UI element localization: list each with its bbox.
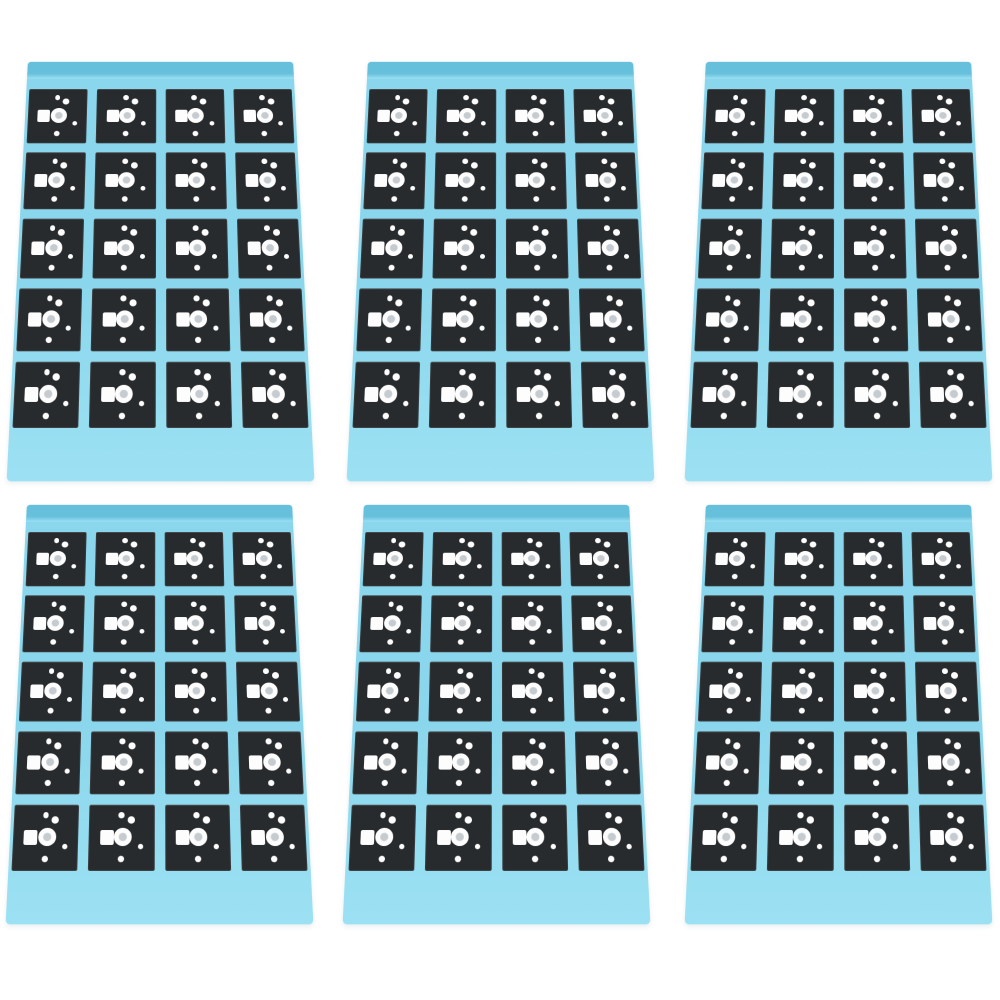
- ring-circle-cutout: [796, 172, 813, 187]
- small-dot-top-left-cutout: [261, 159, 267, 164]
- dot-bottom-cutout: [120, 708, 126, 714]
- ring-circle-cutout: [944, 828, 962, 846]
- small-dot-top-left-cutout: [54, 95, 59, 100]
- square-cutout: [245, 174, 258, 186]
- dot-bottom-cutout: [796, 412, 803, 419]
- adhesive-pad: [26, 89, 87, 143]
- ring-circle-cutout: [262, 753, 280, 770]
- adhesive-pad: [843, 219, 906, 279]
- dot-top-right-cutout: [392, 373, 399, 380]
- dot-bottom-cutout: [51, 196, 57, 202]
- small-dot-top-left-cutout: [379, 812, 385, 818]
- ring-circle-cutout: [594, 615, 611, 630]
- dot-bottom-cutout: [870, 196, 876, 202]
- small-dot-right-cutout: [618, 121, 623, 125]
- adhesive-pad: [916, 731, 982, 794]
- dot-top-right-cutout: [274, 742, 281, 749]
- square-cutout: [583, 685, 596, 698]
- ring-circle-cutout: [187, 108, 203, 123]
- dot-top-right-cutout: [730, 373, 737, 380]
- adhesive-pad: [914, 662, 978, 722]
- small-dot-right-cutout: [476, 629, 481, 634]
- square-cutout: [446, 110, 459, 121]
- ring-circle-cutout: [720, 310, 738, 327]
- dot-top-right-cutout: [128, 742, 135, 749]
- dot-bottom-cutout: [800, 131, 806, 136]
- ring-circle-cutout: [190, 310, 207, 327]
- dot-top-right-cutout: [540, 162, 547, 168]
- adhesive-pad: [843, 362, 909, 428]
- dot-bottom-cutout: [121, 639, 127, 645]
- small-dot-right-cutout: [402, 401, 407, 406]
- small-dot-top-left-cutout: [45, 738, 51, 744]
- small-dot-top-left-cutout: [122, 159, 127, 164]
- ring-circle-cutout: [728, 551, 745, 566]
- small-dot-right-cutout: [401, 769, 406, 774]
- dot-bottom-cutout: [601, 131, 607, 136]
- small-dot-top-left-cutout: [601, 159, 607, 164]
- small-dot-right-cutout: [617, 629, 622, 634]
- adhesive-pad: [89, 362, 155, 428]
- small-dot-right-cutout: [965, 326, 970, 331]
- small-dot-right-cutout: [749, 121, 754, 125]
- adhesive-pad: [430, 288, 494, 351]
- adhesive-pad: [165, 89, 225, 143]
- small-dot-top-left-cutout: [527, 538, 532, 543]
- small-dot-top-left-cutout: [193, 812, 199, 818]
- dot-top-right-cutout: [808, 162, 815, 168]
- square-cutout: [103, 617, 116, 629]
- small-dot-right-cutout: [550, 186, 555, 191]
- adhesive-pad: [573, 89, 634, 143]
- small-dot-top-left-cutout: [529, 738, 535, 744]
- square-cutout: [781, 242, 794, 255]
- small-dot-top-left-cutout: [604, 225, 610, 230]
- small-dot-right-cutout: [743, 326, 748, 331]
- small-dot-right-cutout: [891, 326, 896, 331]
- dot-bottom-cutout: [261, 131, 267, 136]
- square-cutout: [104, 174, 117, 186]
- adhesive-pad: [22, 595, 85, 652]
- adhesive-pad: [770, 662, 833, 722]
- ring-circle-cutout: [455, 551, 471, 566]
- square-cutout: [852, 553, 864, 564]
- dot-bottom-cutout: [530, 780, 536, 786]
- adhesive-sheet-6: [696, 484, 981, 914]
- ring-circle-cutout: [868, 753, 885, 770]
- ring-circle-cutout: [186, 551, 202, 566]
- dot-top-right-cutout: [203, 373, 210, 380]
- ring-circle-cutout: [868, 828, 886, 846]
- dot-top-right-cutout: [609, 672, 616, 678]
- adhesive-pad: [18, 662, 82, 722]
- small-dot-top-left-cutout: [730, 159, 736, 164]
- dot-bottom-cutout: [191, 639, 197, 645]
- small-dot-right-cutout: [284, 254, 289, 259]
- square-cutout: [709, 242, 723, 255]
- dot-bottom-cutout: [44, 780, 51, 786]
- square-cutout: [852, 110, 864, 121]
- adhesive-pad: [916, 288, 982, 351]
- small-dot-right-cutout: [138, 769, 143, 774]
- ring-circle-cutout: [50, 108, 67, 123]
- dot-bottom-cutout: [528, 574, 534, 579]
- dot-top-right-cutout: [542, 299, 549, 306]
- dot-bottom-cutout: [120, 337, 126, 343]
- adhesive-pad: [432, 219, 495, 279]
- adhesive-pad: [232, 532, 293, 586]
- dot-top-right-cutout: [396, 605, 403, 611]
- small-dot-top-left-cutout: [944, 738, 950, 744]
- dot-top-right-cutout: [618, 373, 625, 380]
- dot-top-right-cutout: [398, 229, 405, 235]
- dot-bottom-cutout: [265, 708, 271, 714]
- dot-top-right-cutout: [129, 605, 136, 611]
- dot-bottom-cutout: [939, 574, 945, 579]
- square-cutout: [921, 553, 934, 564]
- ring-circle-cutout: [188, 172, 205, 187]
- square-cutout: [444, 174, 457, 186]
- ring-circle-cutout: [936, 172, 953, 187]
- dot-bottom-cutout: [385, 337, 392, 343]
- small-dot-top-left-cutout: [265, 738, 271, 744]
- pad-grid: [687, 79, 989, 428]
- adhesive-pad: [574, 731, 640, 794]
- small-dot-right-cutout: [549, 121, 554, 125]
- small-dot-top-left-cutout: [797, 369, 803, 375]
- ring-circle-cutout: [189, 240, 206, 256]
- small-dot-right-cutout: [888, 629, 893, 634]
- dot-bottom-cutout: [462, 196, 468, 202]
- adhesive-pad: [94, 152, 155, 209]
- ring-circle-cutout: [716, 828, 734, 846]
- ring-circle-cutout: [602, 828, 620, 846]
- sheet-top-edge-strip: [26, 62, 293, 79]
- dot-top-right-cutout: [610, 162, 617, 168]
- ring-circle-cutout: [117, 615, 134, 630]
- ring-circle-cutout: [46, 615, 63, 630]
- small-dot-right-cutout: [959, 186, 964, 191]
- ring-circle-cutout: [868, 310, 885, 327]
- sheet-top-edge-strip: [362, 505, 629, 522]
- dot-bottom-cutout: [382, 412, 389, 419]
- dot-bottom-cutout: [270, 855, 277, 862]
- square-cutout: [373, 553, 386, 564]
- small-dot-top-left-cutout: [797, 812, 803, 818]
- dot-bottom-cutout: [599, 639, 605, 645]
- small-dot-right-cutout: [818, 186, 823, 191]
- small-dot-top-left-cutout: [727, 668, 733, 673]
- ring-circle-cutout: [722, 683, 739, 699]
- small-dot-right-cutout: [139, 564, 144, 568]
- ring-circle-cutout: [528, 172, 545, 187]
- ring-circle-cutout: [38, 385, 56, 403]
- square-cutout: [511, 617, 524, 629]
- ring-circle-cutout: [606, 385, 624, 403]
- dot-top-right-cutout: [607, 98, 614, 104]
- dot-top-right-cutout: [62, 98, 69, 104]
- adhesive-pad: [164, 532, 224, 586]
- square-cutout: [702, 388, 716, 402]
- small-dot-right-cutout: [621, 186, 626, 191]
- ring-circle-cutout: [378, 753, 396, 770]
- dot-top-right-cutout: [467, 541, 474, 547]
- ring-circle-cutout: [939, 683, 956, 699]
- adhesive-pad: [768, 288, 832, 351]
- adhesive-pad: [697, 219, 761, 279]
- adhesive-pad: [505, 288, 569, 351]
- square-cutout: [101, 756, 115, 769]
- small-dot-top-left-cutout: [869, 538, 874, 543]
- ring-circle-cutout: [867, 683, 884, 699]
- small-dot-top-left-cutout: [459, 538, 464, 543]
- small-dot-right-cutout: [137, 844, 142, 849]
- square-cutout: [588, 831, 602, 845]
- dot-top-right-cutout: [398, 541, 405, 547]
- small-dot-right-cutout: [959, 629, 964, 634]
- adhesive-pad: [11, 805, 79, 871]
- dot-top-right-cutout: [52, 373, 59, 380]
- square-cutout: [780, 313, 794, 326]
- small-dot-top-left-cutout: [939, 159, 945, 164]
- dot-bottom-cutout: [461, 265, 467, 271]
- dot-bottom-cutout: [122, 196, 128, 202]
- dot-top-right-cutout: [613, 229, 620, 235]
- ring-circle-cutout: [934, 551, 951, 566]
- square-cutout: [585, 756, 599, 769]
- dot-top-right-cutout: [539, 98, 546, 104]
- small-dot-right-cutout: [747, 629, 752, 634]
- pad-grid: [9, 79, 311, 428]
- dot-bottom-cutout: [384, 708, 390, 714]
- small-dot-right-cutout: [405, 629, 410, 634]
- dot-top-right-cutout: [877, 541, 884, 547]
- small-dot-top-left-cutout: [942, 225, 948, 230]
- dot-bottom-cutout: [266, 265, 272, 271]
- square-cutout: [174, 617, 187, 629]
- dot-top-right-cutout: [535, 541, 542, 547]
- small-dot-top-left-cutout: [532, 225, 538, 230]
- ring-circle-cutout: [596, 108, 613, 123]
- dot-top-right-cutout: [202, 299, 209, 306]
- small-dot-right-cutout: [816, 844, 821, 849]
- square-cutout: [174, 685, 187, 698]
- dot-bottom-cutout: [604, 780, 611, 786]
- adhesive-sheet-2: [358, 41, 643, 471]
- ring-circle-cutout: [188, 683, 205, 699]
- small-dot-right-cutout: [138, 401, 143, 406]
- dot-bottom-cutout: [42, 412, 49, 419]
- dot-bottom-cutout: [872, 337, 878, 343]
- small-dot-right-cutout: [624, 254, 629, 259]
- ring-circle-cutout: [261, 240, 278, 256]
- square-cutout: [930, 831, 944, 845]
- ring-circle-cutout: [119, 108, 135, 123]
- square-cutout: [364, 756, 378, 769]
- dot-bottom-cutout: [194, 855, 201, 862]
- ring-circle-cutout: [792, 828, 810, 846]
- adhesive-pad: [701, 152, 764, 209]
- dot-bottom-cutout: [387, 639, 393, 645]
- dot-top-right-cutout: [200, 672, 207, 678]
- small-dot-right-cutout: [818, 121, 823, 125]
- dot-top-right-cutout: [400, 162, 407, 168]
- dot-top-right-cutout: [471, 98, 478, 104]
- small-dot-right-cutout: [213, 844, 218, 849]
- ring-circle-cutout: [936, 615, 953, 630]
- dot-bottom-cutout: [944, 708, 950, 714]
- dot-top-right-cutout: [806, 816, 813, 823]
- dot-bottom-cutout: [611, 412, 618, 419]
- dot-top-right-cutout: [881, 816, 888, 823]
- small-dot-right-cutout: [743, 769, 748, 774]
- dot-top-right-cutout: [730, 816, 737, 823]
- small-dot-right-cutout: [409, 186, 414, 191]
- dot-bottom-cutout: [949, 412, 956, 419]
- ring-circle-cutout: [189, 753, 206, 770]
- dot-top-right-cutout: [537, 672, 544, 678]
- small-dot-top-left-cutout: [383, 369, 389, 375]
- small-dot-top-left-cutout: [120, 668, 126, 673]
- dot-bottom-cutout: [271, 412, 278, 419]
- adhesive-pad: [164, 731, 228, 794]
- dot-top-right-cutout: [468, 373, 475, 380]
- adhesive-pad: [574, 152, 637, 209]
- square-cutout: [105, 553, 118, 564]
- small-dot-right-cutout: [140, 121, 145, 125]
- small-dot-top-left-cutout: [724, 738, 730, 744]
- dot-bottom-cutout: [873, 412, 880, 419]
- small-dot-top-left-cutout: [801, 538, 806, 543]
- dot-bottom-cutout: [729, 196, 735, 202]
- small-dot-right-cutout: [816, 401, 821, 406]
- dot-bottom-cutout: [796, 855, 803, 862]
- adhesive-pad: [697, 662, 761, 722]
- small-dot-right-cutout: [962, 254, 967, 259]
- square-cutout: [175, 831, 189, 845]
- square-cutout: [247, 242, 260, 255]
- dot-bottom-cutout: [528, 639, 534, 645]
- adhesive-pad: [237, 731, 303, 794]
- ring-circle-cutout: [523, 551, 539, 566]
- square-cutout: [712, 174, 725, 186]
- small-dot-right-cutout: [892, 401, 897, 406]
- sheet-liner: [346, 62, 654, 482]
- ring-circle-cutout: [382, 310, 400, 327]
- dot-bottom-cutout: [117, 855, 124, 862]
- small-dot-top-left-cutout: [870, 602, 875, 607]
- dot-bottom-cutout: [870, 639, 876, 645]
- small-dot-right-cutout: [627, 326, 632, 331]
- small-dot-top-left-cutout: [48, 668, 54, 673]
- dot-bottom-cutout: [872, 780, 878, 786]
- small-dot-right-cutout: [817, 254, 822, 259]
- adhesive-pad: [233, 89, 294, 143]
- small-dot-top-left-cutout: [459, 369, 465, 375]
- small-dot-top-left-cutout: [602, 738, 608, 744]
- dot-bottom-cutout: [532, 196, 538, 202]
- ring-circle-cutout: [728, 108, 745, 123]
- square-cutout: [442, 313, 456, 326]
- square-cutout: [364, 388, 378, 402]
- small-dot-top-left-cutout: [121, 225, 127, 230]
- dot-top-right-cutout: [465, 672, 472, 678]
- dot-top-right-cutout: [879, 229, 886, 235]
- small-dot-top-left-cutout: [870, 668, 876, 673]
- small-dot-top-left-cutout: [269, 369, 275, 375]
- sheet-top-edge-strip: [704, 62, 971, 79]
- dot-bottom-cutout: [602, 708, 608, 714]
- small-dot-right-cutout: [749, 564, 754, 568]
- dot-bottom-cutout: [458, 574, 464, 579]
- small-dot-top-left-cutout: [259, 95, 264, 100]
- ring-circle-cutout: [597, 683, 614, 699]
- small-dot-top-left-cutout: [122, 538, 127, 543]
- adhesive-pad: [12, 362, 80, 428]
- adhesive-pad: [704, 532, 765, 586]
- dot-bottom-cutout: [47, 708, 53, 714]
- small-dot-right-cutout: [956, 121, 961, 125]
- square-cutout: [927, 313, 941, 326]
- dot-top-right-cutout: [272, 672, 279, 678]
- ring-circle-cutout: [256, 108, 273, 123]
- small-dot-top-left-cutout: [389, 225, 395, 230]
- small-dot-top-left-cutout: [392, 159, 398, 164]
- adhesive-pad: [772, 152, 833, 209]
- ring-circle-cutout: [530, 385, 548, 403]
- dot-bottom-cutout: [800, 196, 806, 202]
- dot-top-right-cutout: [129, 299, 136, 306]
- small-dot-right-cutout: [68, 629, 73, 634]
- dot-bottom-cutout: [458, 639, 464, 645]
- ring-circle-cutout: [797, 108, 813, 123]
- small-dot-top-left-cutout: [531, 95, 536, 100]
- adhesive-pad: [15, 731, 81, 794]
- dot-top-right-cutout: [129, 229, 136, 235]
- dot-top-right-cutout: [55, 299, 62, 306]
- ring-circle-cutout: [374, 828, 392, 846]
- dot-bottom-cutout: [800, 639, 806, 645]
- adhesive-pad: [576, 219, 640, 279]
- dot-top-right-cutout: [466, 605, 473, 611]
- square-cutout: [925, 242, 938, 255]
- dot-top-right-cutout: [953, 742, 960, 749]
- square-cutout: [440, 388, 454, 402]
- small-dot-top-left-cutout: [942, 668, 948, 673]
- small-dot-top-left-cutout: [528, 602, 533, 607]
- small-dot-right-cutout: [553, 326, 558, 331]
- ring-circle-cutout: [387, 172, 404, 187]
- small-dot-right-cutout: [479, 254, 484, 259]
- dot-top-right-cutout: [464, 816, 471, 823]
- ring-circle-cutout: [601, 240, 618, 256]
- dot-bottom-cutout: [798, 337, 804, 343]
- square-cutout: [782, 174, 795, 186]
- dot-top-right-cutout: [878, 162, 885, 168]
- small-dot-top-left-cutout: [51, 602, 57, 607]
- dot-top-right-cutout: [128, 373, 135, 380]
- dot-bottom-cutout: [119, 780, 125, 786]
- small-dot-right-cutout: [407, 254, 412, 259]
- dot-top-right-cutout: [615, 299, 622, 306]
- small-dot-top-left-cutout: [394, 95, 399, 100]
- square-cutout: [30, 685, 44, 698]
- dot-top-right-cutout: [738, 605, 745, 611]
- small-dot-top-left-cutout: [52, 159, 58, 164]
- dot-bottom-cutout: [798, 780, 804, 786]
- square-cutout: [27, 756, 41, 769]
- dot-top-right-cutout: [54, 742, 61, 749]
